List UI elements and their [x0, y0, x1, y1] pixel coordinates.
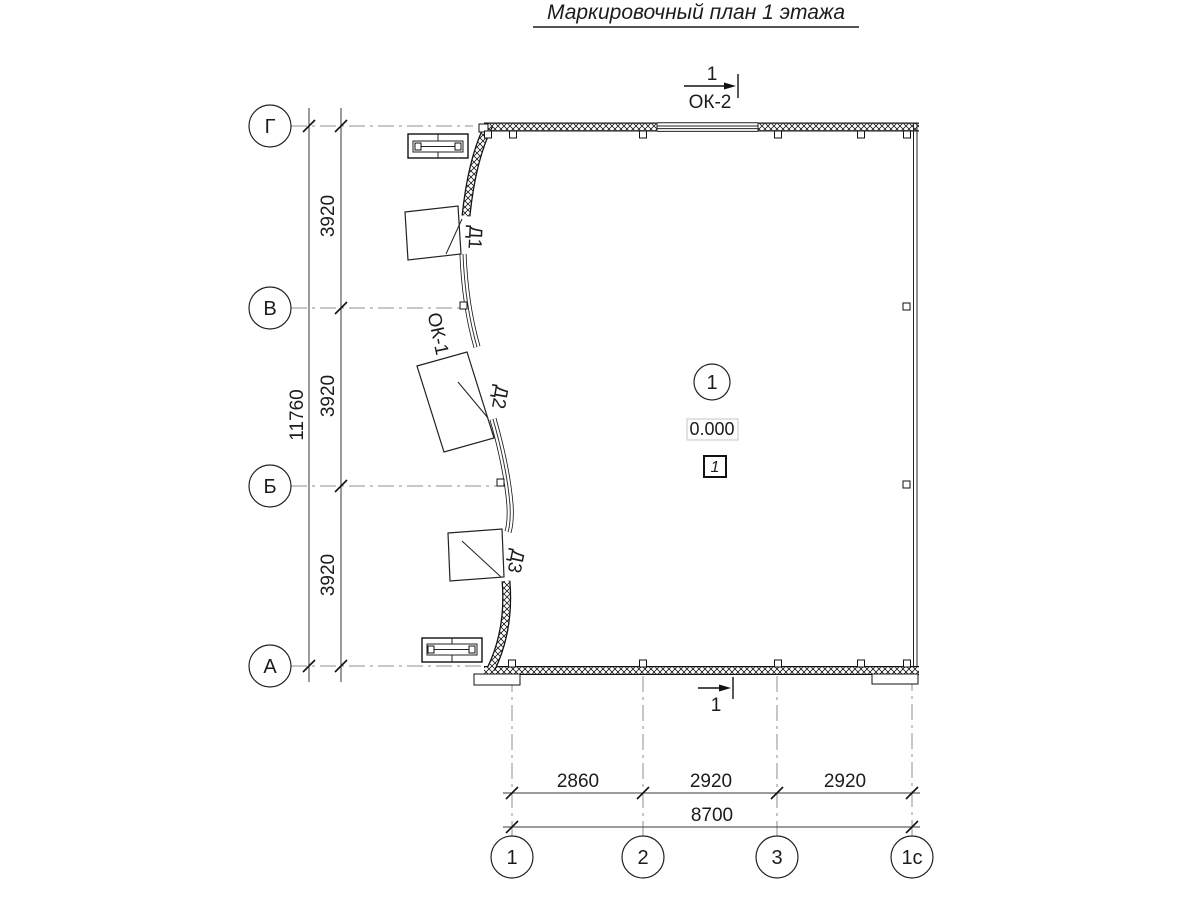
dim-left-seg3: 3920 [318, 554, 339, 596]
dim-left-seg1: 3920 [318, 195, 339, 237]
axis-label-2: 2 [637, 847, 648, 869]
axis-label-v: В [263, 298, 276, 320]
drawing-title: Маркировочный план 1 этажа [533, 1, 859, 27]
door-d1-leaf [405, 206, 461, 260]
dim-left-total: 11760 [287, 389, 308, 440]
floor-type-value: 1 [711, 459, 720, 476]
door-d2-label: Д2 [487, 384, 512, 411]
door-d3-leaf [448, 529, 504, 581]
dim-bottom-seg3: 2920 [824, 771, 866, 792]
axis-label-a: А [263, 656, 277, 678]
axis-label-1c: 1с [901, 847, 922, 869]
foundation-tab-left [474, 674, 520, 685]
section-number-bottom: 1 [711, 695, 722, 716]
axis-label-1: 1 [506, 847, 517, 869]
room-number: 1 [706, 372, 717, 394]
dim-bottom-seg1: 2860 [557, 771, 599, 792]
door-d1-label: Д1 [463, 225, 485, 250]
foundation-tab-right [872, 674, 918, 684]
dim-bottom-total: 8700 [691, 805, 733, 826]
window-ok2-label: ОК-2 [689, 92, 732, 113]
dim-left-seg2: 3920 [318, 375, 339, 417]
elevation-value: 0.000 [689, 419, 734, 439]
sheet-background [0, 0, 1200, 900]
door-d3 [448, 529, 504, 581]
section-number-top: 1 [707, 64, 718, 85]
page-title: Маркировочный план 1 этажа [547, 1, 845, 24]
axis-label-3: 3 [771, 847, 782, 869]
axis-label-b: Б [263, 476, 276, 498]
door-d1 [405, 206, 462, 260]
axis-label-g: Г [265, 116, 276, 138]
floor-plan-drawing: Маркировочный план 1 этажа [0, 0, 1200, 900]
dim-bottom-seg2: 2920 [690, 771, 732, 792]
